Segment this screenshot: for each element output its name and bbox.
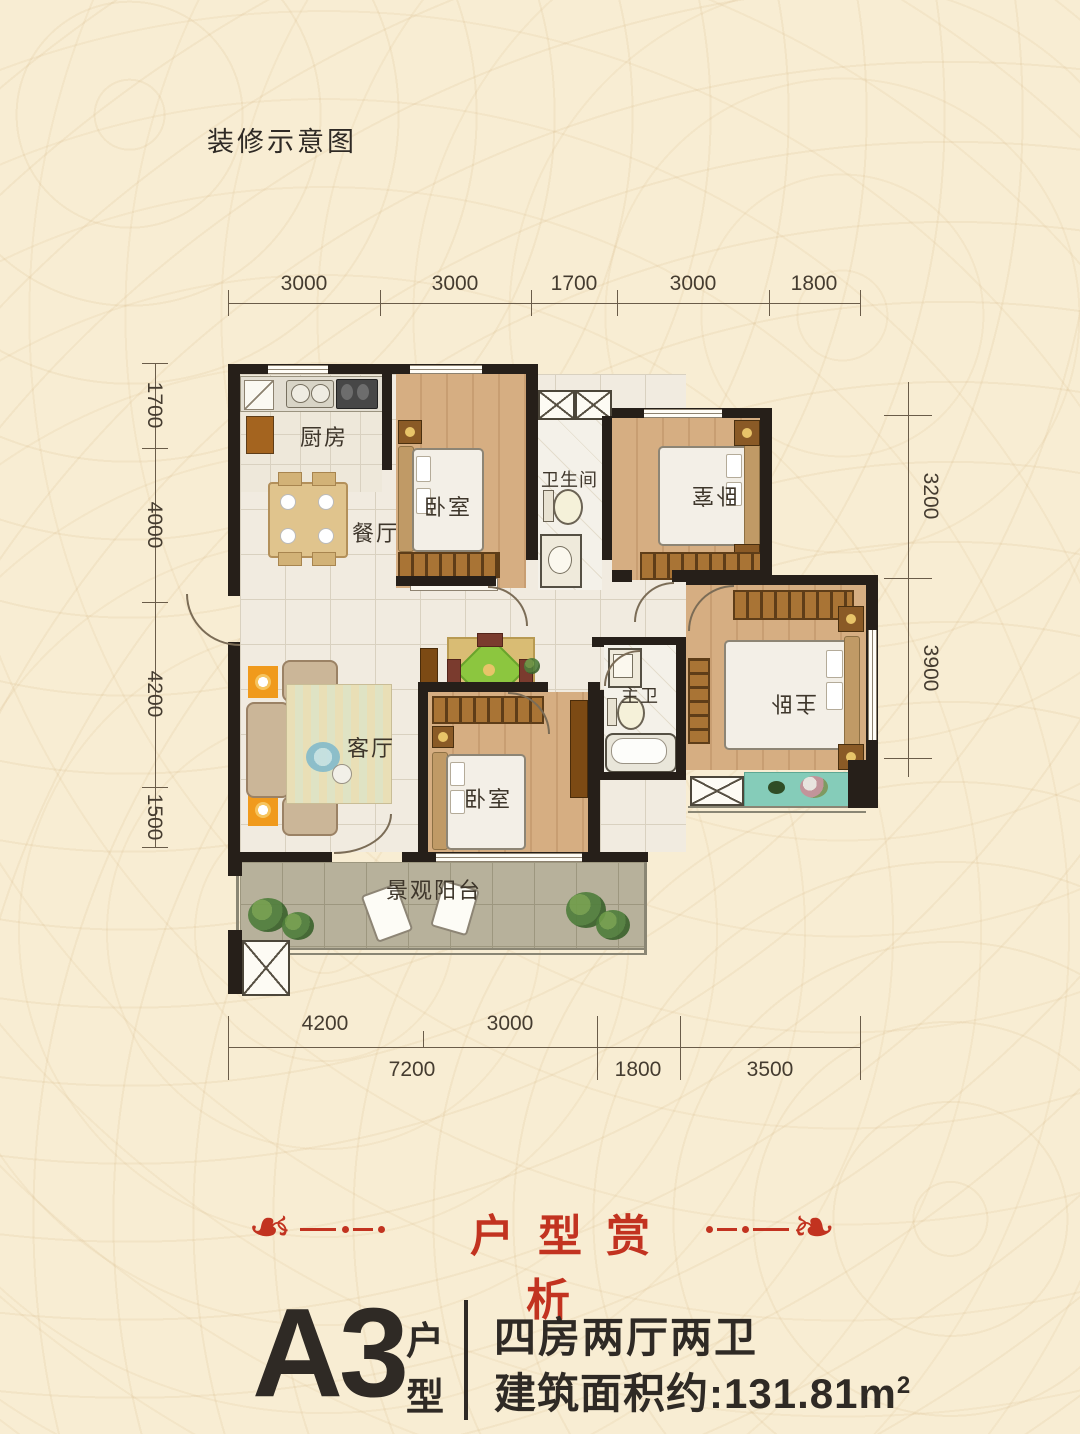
room-label-dining: 餐厅 — [352, 516, 400, 548]
kitchen-fridge — [246, 416, 274, 454]
master-bay — [744, 772, 850, 808]
flowers-icon — [800, 776, 828, 798]
sink-bowl-right — [311, 384, 330, 403]
toilet-tank — [607, 698, 617, 726]
side-table-lamp — [248, 666, 278, 698]
kitchen-cabinet — [244, 380, 274, 410]
window — [268, 365, 328, 374]
unit-area-sup: 2 — [897, 1372, 911, 1399]
unit-area: 建筑面积约:131.81m2 — [494, 1360, 911, 1421]
room-label-living: 客厅 — [347, 731, 395, 763]
room-label-bedroom-4: 卧室 — [464, 782, 512, 814]
dim-top-4: 3000 — [648, 272, 738, 294]
dining-table — [268, 482, 348, 558]
stove-burner-right — [357, 384, 369, 400]
toilet — [553, 489, 583, 525]
unit-code: A3 — [252, 1290, 405, 1416]
wardrobe — [398, 552, 500, 578]
shaft-icon — [242, 940, 290, 996]
doc-label: 装修示意图 — [207, 120, 357, 159]
unit-area-value: 131.81m — [724, 1370, 897, 1417]
wardrobe — [688, 658, 710, 744]
dim-left-1: 1700 — [144, 360, 166, 450]
room-label-bedroom-2: 卧室 — [424, 490, 472, 522]
coffee-table — [332, 764, 352, 784]
dim-bottom-lower-1: 7200 — [367, 1058, 457, 1080]
room-label-bathroom: 卫生间 — [541, 466, 598, 492]
floorplan-flyer: 装修示意图 3000 3000 1700 3000 1800 1700 4000… — [0, 0, 1080, 1434]
window — [410, 365, 482, 374]
nightstand — [734, 420, 760, 446]
unit-type-bottom: 型 — [406, 1366, 444, 1421]
entrance-door — [186, 594, 240, 646]
room-label-bedroom-3: 卧室 — [690, 481, 738, 513]
wardrobe — [733, 590, 854, 620]
dim-top-5: 1800 — [769, 272, 859, 294]
side-table-lamp — [248, 794, 278, 826]
stove-burner-left — [341, 384, 353, 400]
plant-icon — [282, 912, 314, 940]
shaft-icon — [538, 390, 575, 420]
dim-bottom-lower-3: 3500 — [725, 1058, 815, 1080]
room-label-kitchen: 厨房 — [300, 420, 348, 452]
dim-top-2: 3000 — [410, 272, 500, 294]
nightstand — [432, 726, 454, 748]
nightstand — [398, 420, 422, 444]
sofa-long — [246, 702, 290, 798]
dim-bottom-lower-2: 1800 — [593, 1058, 683, 1080]
plant-icon — [524, 658, 540, 674]
dim-left-2: 4000 — [144, 480, 166, 570]
dim-top-3: 1700 — [529, 272, 619, 294]
dim-bottom-upper-2: 3000 — [465, 1012, 555, 1034]
dim-left-3: 4200 — [144, 649, 166, 739]
flourish-icon-right: ❧ — [792, 1198, 836, 1258]
window — [868, 630, 877, 740]
turtle-icon — [768, 781, 785, 794]
unit-area-label: 建筑面积约: — [494, 1370, 724, 1417]
flourish-icon-left: ❧ — [248, 1198, 292, 1258]
room-label-balcony: 景观阳台 — [386, 873, 482, 905]
unit-layout: 四房两厅两卫 — [494, 1304, 758, 1365]
shaft-icon — [690, 776, 744, 806]
unit-type-top: 户 — [406, 1310, 444, 1365]
dim-bottom-upper-1: 4200 — [280, 1012, 370, 1034]
dim-right-1: 3200 — [920, 451, 942, 541]
sink-bowl-left — [291, 384, 310, 403]
divider — [464, 1300, 468, 1420]
desk — [570, 700, 588, 798]
bed-headboard — [744, 444, 760, 546]
window — [644, 409, 722, 418]
dim-left-4: 1500 — [144, 772, 166, 862]
dim-right-2: 3900 — [920, 623, 942, 713]
plant-icon — [596, 910, 630, 940]
bed-headboard — [844, 636, 860, 752]
window — [436, 853, 582, 862]
dim-top-1: 3000 — [259, 272, 349, 294]
nightstand — [838, 606, 864, 632]
room-label-master-bedroom: 主卧 — [769, 689, 817, 721]
